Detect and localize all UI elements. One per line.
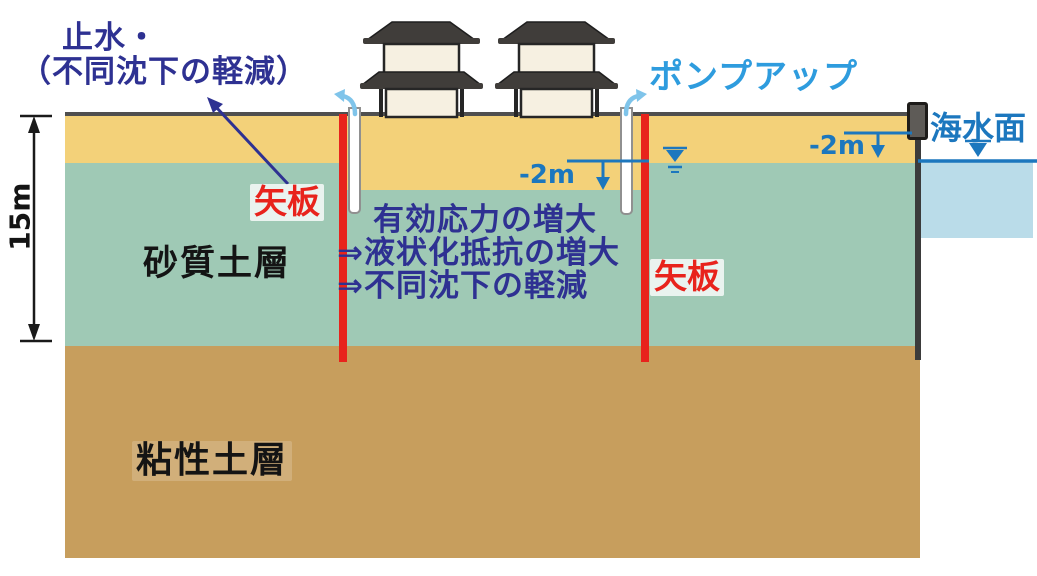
- pump-well-right: [620, 107, 633, 215]
- clay-layer-label: 粘性土層: [132, 441, 292, 481]
- building-icon: [360, 22, 618, 117]
- effect-line2: ⇒液状化抵抗の増大: [337, 237, 620, 270]
- drawdown-sea-label: -2m: [809, 133, 865, 160]
- pump-up-label: ポンプアップ: [649, 60, 858, 96]
- sheet-pile-right-bar: [641, 114, 649, 362]
- ground-surface-line: [65, 112, 920, 116]
- drawdown-inner-label: -2m: [519, 162, 575, 189]
- quay-wall-bar: [915, 114, 921, 360]
- effect-line3: ⇒不同沈下の軽減: [337, 270, 588, 303]
- surface-soil-inner-patch: [346, 115, 642, 190]
- liquefaction-countermeasure-diagram: 止水・ （不同沈下の軽減） 矢板 矢板 ポンプアップ 海水面 -2m -2m 有…: [0, 0, 1037, 576]
- sheet-pile-right-label: 矢板: [650, 259, 724, 296]
- sheet-pile-left-label: 矢板: [250, 184, 324, 221]
- waterproofing-label-line2: （不同沈下の軽減）: [20, 56, 308, 89]
- pump-well-left: [348, 107, 361, 214]
- sandy-layer-label: 砂質土層: [143, 246, 291, 283]
- sea-surface-label: 海水面: [930, 112, 1026, 146]
- bollard-icon: [907, 102, 928, 140]
- depth-dimension-label: 15m: [5, 191, 34, 251]
- effect-line1: 有効応力の増大: [373, 204, 597, 237]
- sea-water: [921, 161, 1033, 238]
- waterproofing-label-line1: 止水・: [62, 22, 158, 55]
